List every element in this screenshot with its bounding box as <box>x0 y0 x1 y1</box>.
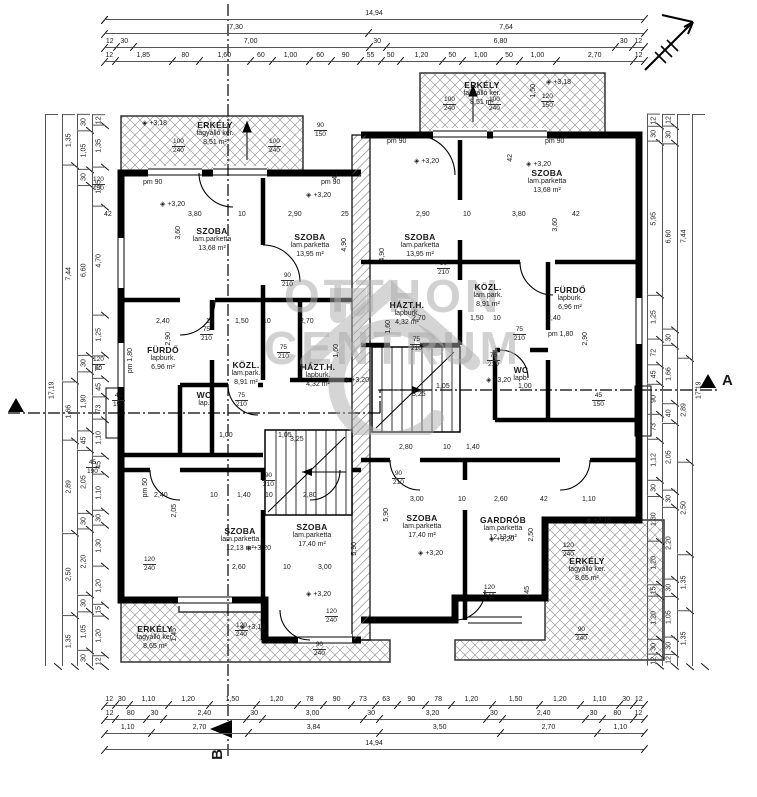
dimension-segment: 7,00 <box>133 37 369 48</box>
dim-label: 1,40 <box>237 492 251 500</box>
elevation-label: +3,20 <box>526 161 551 169</box>
dim-label: 2,60 <box>232 564 246 572</box>
parapet-label: pm 90 <box>143 179 162 187</box>
dimension-segment: 60 <box>309 51 331 62</box>
dim-bottom-openings: 12301,101,201,501,207890736390781,201,50… <box>104 694 644 706</box>
opening-size-label: 90210 <box>392 470 405 486</box>
dimension-segment: 50 <box>442 51 462 62</box>
dim-label: 1,10 <box>582 496 596 504</box>
dimension-segment: 12 <box>662 114 675 126</box>
section-b-label: B <box>209 749 226 760</box>
dimension-segment: 12 <box>632 37 644 48</box>
dimension-segment: 1,25 <box>92 315 105 355</box>
dimension-segment: 90 <box>397 695 425 706</box>
dim-bottom-groups: 1,102,703,843,502,701,10 <box>104 722 644 734</box>
floor-plan-page: OTTHON CENTRUM 14,94 7,307,64 12307,0030… <box>0 0 757 797</box>
dimension-segment: 12 <box>104 695 115 706</box>
dimension-segment: 30 <box>662 126 675 143</box>
dim-label: 10 <box>263 318 271 326</box>
dim-label: 5,90 <box>383 508 391 522</box>
dimension-segment: 12 <box>647 114 660 126</box>
dimension-segment: 30 <box>662 329 675 346</box>
dimension-segment: 2,70 <box>556 51 633 62</box>
dimension-segment: 1,10 <box>92 474 105 511</box>
dimension-segment: 15 <box>92 604 105 616</box>
section-a-left-arrow <box>8 398 24 412</box>
dim-label: 10 <box>265 492 273 500</box>
dim-label: 2,40 <box>156 318 170 326</box>
dim-top-total: 14,94 <box>104 8 644 20</box>
elevation-label: +3,20 <box>306 192 331 200</box>
dimension-segment: 30 <box>363 709 379 720</box>
dimension-segment: 90 <box>647 384 660 414</box>
opening-size-label: 100240 <box>443 96 456 112</box>
dim-label: 1,50 <box>235 318 249 326</box>
dimension-segment: 80 <box>115 709 146 720</box>
dim-label: 42 <box>572 211 580 219</box>
section-a-label: A <box>722 372 733 389</box>
dimension-segment: 1,20 <box>92 566 105 605</box>
dimension-segment: 1,20 <box>400 51 442 62</box>
dim-label: 1,00 <box>518 383 532 391</box>
opening-size-label: 120240 <box>235 622 248 638</box>
dim-label: 2,70 <box>412 315 426 323</box>
dimension-segment: 30 <box>615 37 632 48</box>
dimension-segment: 1,35 <box>92 125 105 167</box>
dimension-segment: 3,00 <box>262 709 363 720</box>
dim-label: 3,60 <box>552 218 560 232</box>
elevation-label: +3,20 <box>160 201 185 209</box>
dimension-segment: 80 <box>172 51 199 62</box>
dim-label: 1,60 <box>385 320 393 334</box>
dim-label: 3,80 <box>188 211 202 219</box>
dimension-segment: 1,35 <box>62 615 75 666</box>
dim-label: 10 <box>458 496 466 504</box>
dimension-segment: 2,89 <box>62 440 75 533</box>
dim-right-total: 17,19 <box>693 114 705 666</box>
dimension-segment: 1,05 <box>77 130 90 169</box>
dimension-segment: 1,20 <box>647 541 660 584</box>
opening-size-label: 120150 <box>92 176 105 192</box>
dim-label: 1,60 <box>333 344 341 358</box>
room-label-erkely-top-left: ERKÉLYfagyálló ker.8,51 m² <box>196 120 233 147</box>
dim-label: 5,90 <box>351 542 359 556</box>
dimension-segment: 2,70 <box>500 723 596 734</box>
dimension-segment: 2,70 <box>151 723 247 734</box>
dimension-segment: 78 <box>297 695 323 706</box>
dimension-segment: 2,50 <box>62 533 75 615</box>
dim-label: 4,90 <box>341 238 349 252</box>
dimension-segment: 12 <box>647 654 660 666</box>
room-label-szoba17-right: SZOBAlam.parketta17,40 m² <box>403 513 442 540</box>
dimension-segment: 78 <box>425 695 451 706</box>
dimension-segment: 30 <box>585 709 601 720</box>
opening-size-label: 90210 <box>437 260 450 276</box>
dimension-segment: 1,66 <box>62 381 75 440</box>
dim-label: 10 <box>238 211 246 219</box>
dimension-segment: 17,19 <box>45 114 58 666</box>
dimension-segment: 1,10 <box>92 419 105 456</box>
dimension-segment: 2,89 <box>677 358 690 462</box>
dim-label: 1,45 <box>171 628 179 642</box>
opening-size-label: 90150 <box>314 122 327 138</box>
dimension-segment: 7,44 <box>62 165 75 381</box>
dim-label: 10 <box>210 492 218 500</box>
dim-label: 42 <box>540 496 548 504</box>
dimension-segment: 30 <box>662 579 675 596</box>
dim-label: 10 <box>206 318 214 326</box>
dimension-segment: 30 <box>77 355 90 371</box>
dim-label: 2,90 <box>416 211 430 219</box>
dimension-segment: 6,60 <box>77 185 90 355</box>
dimension-segment: 1,20 <box>647 596 660 639</box>
dimension-segment: 30 <box>619 695 634 706</box>
dimension-segment: 55 <box>360 51 381 62</box>
dimension-segment: 1,20 <box>168 695 209 706</box>
dim-label: 2,60 <box>494 496 508 504</box>
dimension-segment: 30 <box>647 126 660 142</box>
dimension-segment: 1,12 <box>647 439 660 480</box>
opening-size-label: 100240 <box>268 138 281 154</box>
dimension-segment: 30 <box>662 637 675 654</box>
dim-right-mid: 12306,60301,66402,05302,20301,053012 <box>663 114 675 666</box>
dimension-segment: 73 <box>92 396 105 419</box>
opening-size-label: 75210 <box>487 352 500 368</box>
dimension-segment: 1,10 <box>597 723 644 734</box>
dimension-segment: 1,00 <box>519 51 556 62</box>
dimension-segment: 1,20 <box>539 695 580 706</box>
parapet-label: pm 50 <box>142 478 150 497</box>
dimension-segment: 30 <box>647 639 660 655</box>
opening-size-label: 120150 <box>541 93 554 109</box>
dim-label: 42 <box>104 211 112 219</box>
dimension-segment: 4,70 <box>92 206 105 315</box>
dimension-segment: 1,30 <box>92 525 105 566</box>
dim-label: 1,05 <box>278 432 292 440</box>
dimension-segment: 1,30 <box>647 496 660 541</box>
dim-label: 1,50 <box>470 315 484 323</box>
dimension-segment: 1,10 <box>580 695 619 706</box>
dim-label: 2,40 <box>547 315 561 323</box>
dim-label: 3,00 <box>318 564 332 572</box>
dimension-segment: 2,20 <box>662 507 675 579</box>
dim-label: 42 <box>332 172 340 180</box>
dim-label: 2,70 <box>300 318 314 326</box>
dimension-segment: 3,20 <box>379 709 485 720</box>
opening-size-label: 75210 <box>277 344 290 360</box>
dim-label: 3,25 <box>412 391 426 399</box>
opening-size-label: 75210 <box>200 326 213 342</box>
dim-left-mid: 301,05306,60301,90452,05302,20301,0530 <box>78 114 90 666</box>
parapet-label: pm 1,80 <box>548 331 573 339</box>
opening-size-label: 100240 <box>172 138 185 154</box>
dim-left-inner: 121,351,254,701,257345731,10451,10301,30… <box>93 114 105 666</box>
opening-size-label: 120240 <box>562 542 575 558</box>
opening-size-label: 75210 <box>235 392 248 408</box>
dim-label: 3,60 <box>175 226 183 240</box>
dim-label: 42 <box>507 154 515 162</box>
opening-size-label: 75210 <box>513 326 526 342</box>
opening-size-label: 90240 <box>575 626 588 642</box>
room-label-wc-left: WClap. <box>197 390 212 409</box>
dimension-segment: 12 <box>104 709 115 720</box>
elevation-label: +3,20 <box>246 545 271 553</box>
room-label-szoba-right-1: SZOBAlam.parketta13,95 m² <box>401 232 440 259</box>
dim-label: 2,80 <box>399 444 413 452</box>
opening-size-label: 45190 <box>86 459 99 475</box>
opening-size-label: 90210 <box>281 272 294 288</box>
dimension-segment: 14,94 <box>104 9 644 20</box>
elevation-label: +3,18 <box>546 79 571 87</box>
dimension-segment: 14,94 <box>104 739 644 750</box>
dimension-segment: 73 <box>647 414 660 440</box>
dimension-segment: 40 <box>662 403 675 422</box>
dimension-segment: 7,44 <box>677 114 690 358</box>
dim-bottom-axes: 1280302,40303,00303,20302,40308012 <box>104 708 644 720</box>
opening-size-label: 90210 <box>262 472 275 488</box>
dimension-segment: 30 <box>77 513 90 529</box>
dimension-segment: 7,30 <box>104 23 368 34</box>
dim-label: 10 <box>493 315 501 323</box>
dimension-segment: 1,20 <box>256 695 297 706</box>
opening-size-label: 120240 <box>143 556 156 572</box>
dim-left-outer: 1,357,441,662,892,501,35 <box>63 114 75 666</box>
staircase-left <box>265 430 352 515</box>
opening-size-label: 45150 <box>112 392 125 408</box>
dimension-segment: 30 <box>246 709 262 720</box>
dimension-segment: 1,50 <box>209 695 257 706</box>
dimension-segment: 5,95 <box>647 141 660 295</box>
north-arrow-icon <box>645 15 693 70</box>
dim-label: 2,90 <box>165 332 173 346</box>
dimension-segment: 50 <box>499 51 519 62</box>
dimension-segment: 90 <box>331 51 360 62</box>
dimension-segment: 2,20 <box>77 528 90 594</box>
elevation-label: +3,20 <box>486 377 511 385</box>
dimension-segment: 15 <box>647 584 660 596</box>
dimension-segment: 30 <box>647 480 660 496</box>
dimension-segment: 30 <box>77 114 90 130</box>
dimension-segment: 7,64 <box>368 23 644 34</box>
dimension-segment: 3,50 <box>379 723 500 734</box>
dimension-segment: 30 <box>92 510 105 525</box>
dimension-segment: 45 <box>92 378 105 396</box>
dimension-segment: 45 <box>647 364 660 383</box>
dimension-segment: 6,80 <box>386 37 615 48</box>
dimension-segment: 1,60 <box>199 51 250 62</box>
opening-size-label: 120240 <box>483 584 496 600</box>
room-label-szoba-right-2: SZOBAlam.parketta13,68 m² <box>528 168 567 195</box>
dimension-segment: 30 <box>486 709 502 720</box>
dimension-segment: 12 <box>92 655 105 666</box>
dimension-segment: 30 <box>662 490 675 507</box>
parapet-label: pm 90 <box>387 138 406 146</box>
dim-label: 1,05 <box>436 383 450 391</box>
dim-top-halves: 7,307,64 <box>104 22 644 34</box>
room-label-wc-right: WClapb. <box>513 365 528 384</box>
dimension-segment: 30 <box>369 37 386 48</box>
dimension-segment: 1,10 <box>129 695 168 706</box>
elevation-label: +3,20 <box>489 536 514 544</box>
dimension-segment: 45 <box>77 430 90 449</box>
dimension-segment: 1,10 <box>104 723 151 734</box>
dimension-segment: 12 <box>92 114 105 125</box>
dimension-segment: 1,35 <box>677 610 690 666</box>
dim-label: 2,50 <box>528 528 536 542</box>
dimension-segment: 1,50 <box>492 695 540 706</box>
opening-size-label: 100240 <box>488 96 501 112</box>
parapet-label: pm 90 <box>321 179 340 187</box>
room-label-szoba17-left: SZOBAlam.parketta17,40 m² <box>293 522 332 549</box>
dim-label: 2,05 <box>171 504 179 518</box>
dim-left-total: 17,19 <box>46 114 58 666</box>
dim-label: 2,90 <box>288 211 302 219</box>
room-label-erkely-bottom-left: ERKÉLYfagyálló ker.8,65 m² <box>136 624 173 651</box>
dimension-segment: 12 <box>104 37 116 48</box>
dimension-segment: 1,05 <box>662 596 675 638</box>
dimension-segment: 2,05 <box>662 423 675 491</box>
elevation-label: +3,20 <box>414 158 439 166</box>
room-label-hazt-left: HÁZT.H.lapburk.4,32 m² <box>301 362 336 389</box>
dim-top-axes: 12307,00306,803012 <box>104 36 644 48</box>
dim-label: 1,40 <box>466 444 480 452</box>
room-label-szoba-left-2: SZOBAlam.parketta13,95 m² <box>291 232 330 259</box>
dimension-segment: 12 <box>633 695 644 706</box>
elevation-label: +3,18 <box>586 517 611 525</box>
dim-right-outer: 7,442,892,501,351,35 <box>678 114 690 666</box>
dim-label: 2,90 <box>582 332 590 346</box>
dimension-segment: 30 <box>116 37 133 48</box>
dimension-segment: 63 <box>375 695 397 706</box>
room-label-erkely-bottom-right: ERKÉLYfagyálló ker.8,65 m² <box>568 556 605 583</box>
elevation-label: +3,18 <box>142 120 167 128</box>
dimension-segment: 1,20 <box>92 616 105 655</box>
parapet-label: pm 1,80 <box>127 348 135 373</box>
dimension-segment: 17,19 <box>692 114 705 666</box>
dimension-segment: 30 <box>77 650 90 666</box>
room-label-furdo-right: FÜRDŐlapburk.6,96 m² <box>554 285 586 312</box>
dimension-segment: 30 <box>146 709 162 720</box>
dim-label: 25 <box>341 211 349 219</box>
dim-label: 1,00 <box>219 432 233 440</box>
opening-size-label: 45150 <box>592 392 605 408</box>
opening-size-label: 12060 <box>92 356 105 372</box>
parapet-label: pm 90 <box>545 138 564 146</box>
dimension-segment: 73 <box>351 695 375 706</box>
dim-bottom-total: 14,94 <box>104 738 644 750</box>
dim-label: 3,80 <box>512 211 526 219</box>
dimension-segment: 12 <box>633 51 644 62</box>
dimension-segment: 30 <box>77 595 90 611</box>
opening-size-label: 90240 <box>313 641 326 657</box>
dimension-segment: 1,00 <box>272 51 309 62</box>
dimension-segment: 60 <box>250 51 272 62</box>
dimension-segment: 30 <box>115 695 130 706</box>
party-wall <box>352 135 370 640</box>
opening-size-label: 120240 <box>325 608 338 624</box>
room-label-kozl-right: KÖZL.lam.park.8,91 m² <box>474 282 503 309</box>
dim-label: 4,90 <box>379 248 387 262</box>
dimension-segment: 2,40 <box>502 709 585 720</box>
dimension-segment: 6,60 <box>662 143 675 329</box>
dim-label: 2,40 <box>154 492 168 500</box>
dimension-segment: 1,05 <box>77 611 90 650</box>
dim-label: 2,80 <box>303 492 317 500</box>
dimension-segment: 1,35 <box>62 114 75 165</box>
elevation-label: +3,20 <box>306 591 331 599</box>
dim-label: 3,00 <box>410 496 424 504</box>
dimension-segment: 2,40 <box>163 709 246 720</box>
dimension-segment: 1,66 <box>662 345 675 403</box>
dimension-segment: 12 <box>662 654 675 666</box>
room-label-furdo-left: FÜRDŐlapburk.6,96 m² <box>147 345 179 372</box>
dim-top-detail: 121,85801,60601,00609055501,20501,00501,… <box>104 50 644 62</box>
dimension-segment: 80 <box>602 709 633 720</box>
dimension-segment: 50 <box>381 51 401 62</box>
dim-label: 10 <box>443 444 451 452</box>
dim-label: 1,45 <box>524 586 532 600</box>
dimension-segment: 30 <box>77 169 90 185</box>
room-label-kozl-left: KÖZL.lam.park.8,91 m² <box>232 360 261 387</box>
dim-label: 10 <box>463 211 471 219</box>
dim-label: 10 <box>283 564 291 572</box>
dim-label: 3,25 <box>290 436 304 444</box>
dimension-segment: 3,84 <box>248 723 379 734</box>
opening-size-label: 75210 <box>410 336 423 352</box>
dimension-segment: 1,20 <box>451 695 492 706</box>
dimension-segment: 72 <box>647 339 660 365</box>
dimension-segment: 1,00 <box>462 51 499 62</box>
dimension-segment: 12 <box>633 709 644 720</box>
dimension-segment: 90 <box>323 695 351 706</box>
dimension-segment: 12 <box>104 51 115 62</box>
dim-right-inner: 12305,951,25724590731,12301,301,20151,20… <box>648 114 660 666</box>
dimension-segment: 2,50 <box>677 462 690 554</box>
dimension-segment: 1,85 <box>115 51 172 62</box>
dimension-segment: 1,25 <box>647 295 660 339</box>
dim-label: 1,50 <box>530 84 538 98</box>
dimension-segment: 1,35 <box>677 554 690 610</box>
dimension-segment: 1,90 <box>77 371 90 430</box>
elevation-label: +3,20 <box>344 377 369 385</box>
elevation-label: +3,20 <box>418 550 443 558</box>
room-label-szoba-left-1: SZOBAlam.parketta13,68 m² <box>193 226 232 253</box>
